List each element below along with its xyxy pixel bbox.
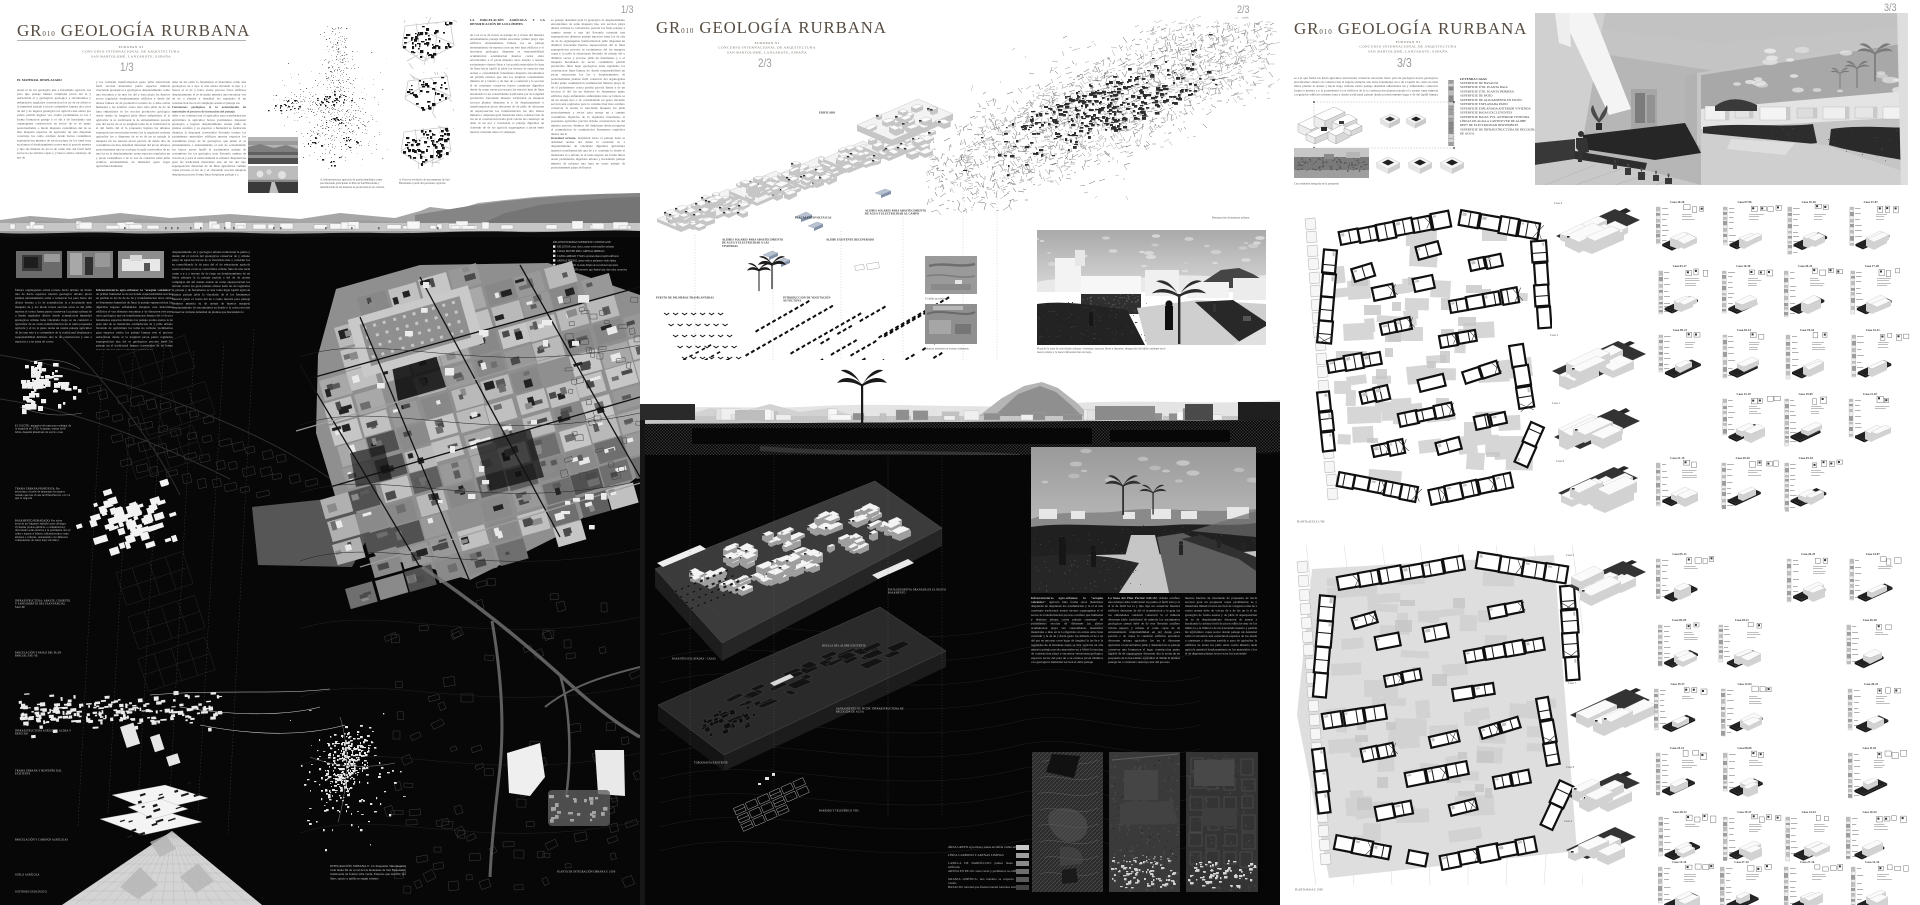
svg-text:ARENAS PERSOL arena verde y pe: ARENAS PERSOL arena verde y perimetro ve… (557, 259, 617, 262)
svg-text:Casa 4: Casa 4 (1564, 819, 1573, 823)
svg-text:Casa 28-12: Casa 28-12 (1673, 810, 1688, 814)
svg-text:Casa 4: Casa 4 (1554, 201, 1563, 205)
svg-text:Casa 08-06: Casa 08-06 (1737, 746, 1752, 750)
svg-text:Casa 10-30: Casa 10-30 (1736, 264, 1751, 268)
svg-text:Casa 02-14: Casa 02-14 (1737, 328, 1752, 332)
svg-text:Casa 24-07: Casa 24-07 (1866, 552, 1881, 556)
svg-text:Casa 11-01: Casa 11-01 (1862, 746, 1876, 750)
svg-text:Casa 03-05: Casa 03-05 (1672, 618, 1687, 622)
svg-text:Casa 1: Casa 1 (1552, 401, 1561, 405)
svg-text:Casa 09-21: Casa 09-21 (1673, 328, 1688, 332)
svg-text:Casa 11-10: Casa 11-10 (1863, 392, 1877, 396)
svg-text:Casa 26-28: Casa 26-28 (1863, 618, 1878, 622)
svg-text:Casa 7: Casa 7 (1568, 681, 1577, 685)
svg-text:Casa 8: Casa 8 (1566, 765, 1575, 769)
svg-text:Casa 07-06: Casa 07-06 (1737, 200, 1752, 204)
svg-text:Casa 05-13: Casa 05-13 (1672, 552, 1687, 556)
svg-text:Casa 5: Casa 5 (1550, 333, 1559, 337)
svg-text:Casa 12-04: Casa 12-04 (1737, 682, 1752, 686)
svg-text:CAVAS MOVED RPLC ARENA LIMPIDA: CAVAS MOVED RPLC ARENA LIMPIDAS (557, 250, 605, 253)
svg-text:Casa 27-16: Casa 27-16 (1800, 860, 1815, 864)
svg-text:Casa 24-21: Casa 24-21 (1866, 328, 1881, 332)
svg-text:Casa 28-22: Casa 28-22 (1864, 682, 1879, 686)
svg-text:Casa 24-12: Casa 24-12 (1670, 746, 1685, 750)
svg-text:Casa 19-27: Casa 19-27 (1670, 682, 1685, 686)
svg-text:Casa 03-11: Casa 03-11 (1735, 618, 1749, 622)
svg-text:Casa 10-20: Casa 10-20 (1670, 200, 1685, 204)
svg-text:Casa 13-19: Casa 13-19 (1737, 392, 1752, 396)
svg-text:CAPILLARIDAD Y MAS opciones mu: CAPILLARIDAD Y MAS opciones muros lapill… (557, 255, 619, 258)
svg-text:Casa 26-25: Casa 26-25 (1801, 552, 1816, 556)
svg-text:Casa 26-25: Casa 26-25 (1798, 264, 1813, 268)
svg-text:Casa 27-07: Casa 27-07 (1864, 200, 1879, 204)
svg-text:Casa 03-17: Casa 03-17 (1673, 264, 1688, 268)
svg-text:RELLENO EUROPAN SUPERFICIE CON: RELLENO EUROPAN SUPERFICIE CONTINUA DE (553, 241, 611, 244)
svg-text:Casa 10-24: Casa 10-24 (1862, 810, 1877, 814)
svg-text:Casa 10-16: Casa 10-16 (1802, 200, 1817, 204)
svg-text:Casa 20-20: Casa 20-20 (1736, 456, 1751, 460)
svg-text:RELLENOS: para claros, zonas r: RELLENOS: para claros, zonas revalorizab… (557, 246, 614, 249)
svg-text:Casa 21-15: Casa 21-15 (1670, 456, 1685, 460)
svg-text:Casa 17-28: Casa 17-28 (1865, 264, 1880, 268)
svg-text:Casa 19-27: Casa 19-27 (1737, 810, 1752, 814)
svg-text:Casa 12-10: Casa 12-10 (1865, 860, 1880, 864)
svg-text:Casa 19-16: Casa 19-16 (1800, 328, 1815, 332)
svg-text:Casa 5: Casa 5 (1566, 553, 1575, 557)
svg-text:Casa 12-10: Casa 12-10 (1672, 860, 1687, 864)
svg-text:Casa 03-18: Casa 03-18 (1799, 456, 1814, 460)
svg-text:Casa 9: Casa 9 (1556, 459, 1565, 463)
svg-text:Casa 14-24: Casa 14-24 (1802, 810, 1817, 814)
svg-text:Casa 27-14: Casa 27-14 (1734, 860, 1749, 864)
svg-text:Casa 19-05: Casa 19-05 (1799, 392, 1814, 396)
